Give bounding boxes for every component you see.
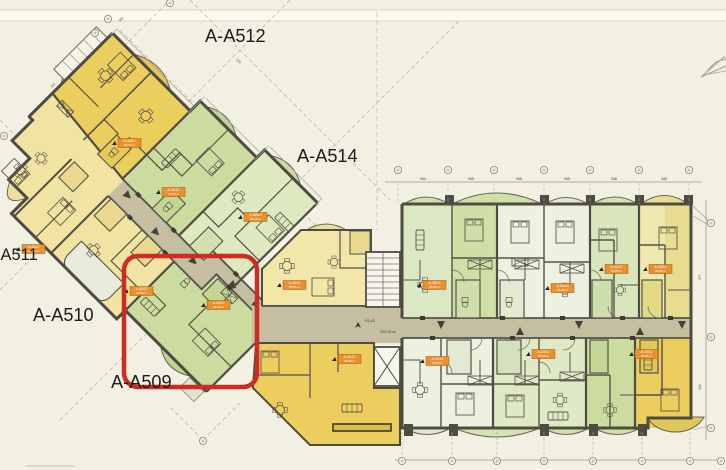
svg-text:344: 344: [420, 177, 426, 181]
svg-text:345: 345: [468, 177, 474, 181]
svg-text:A-A511: A-A511: [0, 246, 38, 264]
svg-text:A-A509: A-A509: [111, 372, 172, 392]
svg-text:366: 366: [698, 384, 702, 390]
svg-text:104,78 m²: 104,78 m²: [380, 330, 397, 334]
svg-text:A-A512: A-A512: [205, 26, 266, 46]
svg-text:A-A510: A-A510: [33, 305, 94, 325]
svg-text:345: 345: [661, 177, 667, 181]
svg-text:346: 346: [516, 177, 522, 181]
svg-text:370: 370: [698, 274, 702, 280]
svg-text:A-A514: A-A514: [297, 146, 358, 166]
svg-text:346: 346: [611, 177, 617, 181]
svg-text:345: 345: [564, 177, 570, 181]
svg-text:+11,43: +11,43: [364, 319, 375, 323]
